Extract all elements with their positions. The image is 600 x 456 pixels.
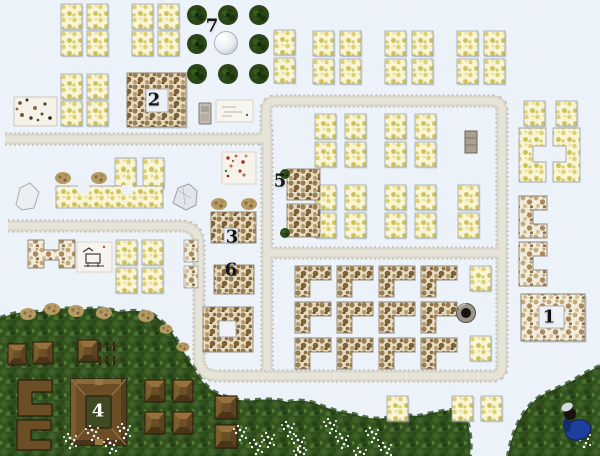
bush-icon bbox=[44, 303, 60, 315]
forest-grove bbox=[187, 5, 269, 84]
field-tile bbox=[415, 185, 438, 212]
bush-icon bbox=[68, 305, 84, 317]
building-2 bbox=[127, 73, 188, 129]
field-tile bbox=[61, 31, 84, 58]
bush-icon bbox=[20, 308, 36, 320]
bush-icon bbox=[55, 172, 71, 184]
field-tile bbox=[385, 185, 408, 212]
pine-tree-icon bbox=[249, 64, 269, 84]
field-tile bbox=[116, 240, 139, 267]
field-tile bbox=[470, 336, 493, 363]
field-tile bbox=[313, 59, 336, 86]
field-tile bbox=[457, 59, 480, 86]
field-tile bbox=[484, 31, 507, 58]
field-tile bbox=[345, 185, 368, 212]
field-tile bbox=[142, 268, 165, 295]
field-tile bbox=[142, 240, 165, 267]
bush-icon bbox=[91, 172, 107, 184]
bush-icon bbox=[96, 307, 112, 319]
fountain-orb-icon bbox=[215, 32, 238, 55]
pine-tree-icon bbox=[249, 34, 269, 54]
field-tile bbox=[524, 101, 547, 128]
field-tile bbox=[313, 31, 336, 58]
hut-icon bbox=[33, 342, 53, 364]
bush-icon bbox=[280, 228, 290, 238]
field-tile bbox=[87, 101, 110, 128]
hut-icon bbox=[8, 344, 26, 365]
field-tile bbox=[387, 396, 410, 423]
field-tile bbox=[481, 396, 504, 423]
field-tile bbox=[345, 114, 368, 141]
field-tile bbox=[470, 266, 493, 293]
building-4 bbox=[71, 379, 126, 445]
field-tile bbox=[385, 31, 408, 58]
hut-icon bbox=[173, 412, 193, 434]
bush-icon bbox=[241, 198, 257, 210]
sketch-plot-north bbox=[216, 100, 253, 122]
field-tile bbox=[340, 31, 363, 58]
field-tile bbox=[458, 213, 481, 240]
field-tile bbox=[274, 30, 297, 57]
field-tile bbox=[315, 142, 338, 169]
field-tile bbox=[61, 74, 84, 101]
sketch-plot-west bbox=[77, 242, 112, 272]
field-tile bbox=[484, 59, 507, 86]
market-plot bbox=[222, 152, 256, 184]
pine-tree-icon bbox=[218, 5, 238, 25]
bush-icon bbox=[211, 198, 227, 210]
field-tile bbox=[274, 58, 297, 85]
field-tile bbox=[61, 101, 84, 128]
field-tile bbox=[132, 4, 155, 31]
small-plot bbox=[184, 266, 198, 288]
pine-tree-icon bbox=[187, 34, 207, 54]
field-tile bbox=[457, 31, 480, 58]
pine-tree-icon bbox=[218, 64, 238, 84]
field-tile bbox=[385, 114, 408, 141]
ruin-plot-west bbox=[14, 97, 57, 126]
field-tile bbox=[412, 59, 435, 86]
bush-icon bbox=[177, 342, 190, 352]
pine-tree-icon bbox=[249, 5, 269, 25]
field-tile bbox=[556, 101, 579, 128]
field-tile bbox=[415, 142, 438, 169]
hut-icon bbox=[215, 396, 237, 419]
field-tile bbox=[87, 4, 110, 31]
field-tile bbox=[415, 114, 438, 141]
field-tile bbox=[385, 59, 408, 86]
bush-icon bbox=[138, 310, 154, 322]
field-tile bbox=[315, 114, 338, 141]
hut-icon bbox=[145, 380, 165, 402]
pine-tree-icon bbox=[187, 64, 207, 84]
bush-icon bbox=[160, 324, 173, 334]
field-tile bbox=[385, 213, 408, 240]
crate-icon bbox=[465, 131, 477, 153]
field-tile bbox=[458, 185, 481, 212]
hut-icon bbox=[145, 412, 165, 434]
field-tile bbox=[340, 59, 363, 86]
field-tile bbox=[132, 31, 155, 58]
hut-icon bbox=[173, 380, 193, 402]
field-tile bbox=[158, 31, 181, 58]
well-icon bbox=[457, 304, 476, 323]
field-tile bbox=[345, 142, 368, 169]
hut-icon bbox=[78, 340, 98, 362]
field-tile bbox=[116, 268, 139, 295]
field-tile bbox=[385, 142, 408, 169]
field-tile bbox=[158, 4, 181, 31]
map-canvas bbox=[0, 0, 600, 456]
field-tile bbox=[87, 74, 110, 101]
field-tile bbox=[345, 213, 368, 240]
small-plot bbox=[184, 240, 198, 262]
building-1 bbox=[521, 294, 587, 343]
field-tile bbox=[61, 4, 84, 31]
field-tile bbox=[452, 396, 475, 423]
village-map: 1234567 bbox=[0, 0, 600, 456]
field-tile bbox=[143, 158, 166, 190]
bush-icon bbox=[280, 169, 290, 179]
field-tile bbox=[87, 31, 110, 58]
statue-icon bbox=[199, 103, 211, 124]
pine-tree-icon bbox=[187, 5, 207, 25]
field-tile bbox=[415, 213, 438, 240]
field-tile bbox=[412, 31, 435, 58]
